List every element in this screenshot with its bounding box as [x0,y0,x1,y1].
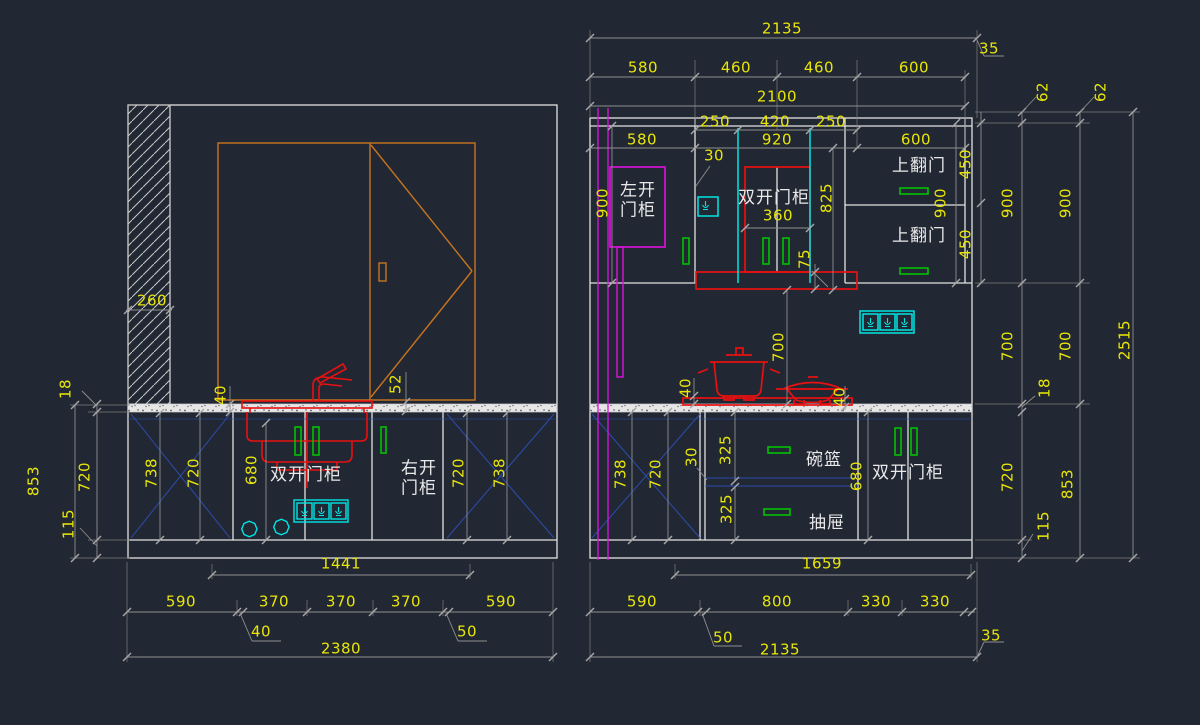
dim-370-c: 370 [391,593,421,610]
dim-115-plinth: 115 [1035,511,1052,541]
dim-325-b: 325 [718,494,735,524]
dim-counter-overhang: 40 [212,385,229,405]
dim-330-b: 330 [920,593,950,610]
dim-62-b: 62 [1092,82,1109,102]
dim-900-left: 900 [594,188,611,218]
dim-460-b: 460 [804,59,834,76]
dimension-lines [70,30,1140,662]
dim-580-inner: 580 [627,131,657,148]
dim-720-base-panel: 720 [647,459,664,489]
dim-700-col1: 700 [999,331,1016,361]
dim-30-base: 30 [683,447,700,467]
dim-738-base: 738 [612,459,629,489]
dim-hatch-width: 260 [137,292,167,309]
dim-370-a: 370 [259,593,289,610]
dim-panel-738-right: 738 [491,458,508,488]
dim-base-total-height: 853 [25,466,42,496]
dim-62-a: 62 [1034,82,1051,102]
dim-700-interior: 700 [770,332,787,362]
dim-panel-720-left: 720 [185,458,202,488]
dim-920: 920 [762,131,792,148]
cad-canvas: 260188537201154052738720680双开门柜右开 门柜7207… [0,0,1200,725]
outlet-and-pipes-left [242,500,348,537]
dim-825: 825 [818,183,835,213]
dim-interior-680: 680 [243,455,260,485]
dim-720-base: 720 [999,462,1016,492]
dim-2380-overall: 2380 [321,640,361,657]
wall-hatch-strip [128,105,170,404]
dim-590-bottom: 590 [627,593,657,610]
dim-panel-738-left: 738 [143,458,160,488]
label-left-door-cabinet: 左开 门柜 [620,181,656,220]
dim-600-top: 600 [899,59,929,76]
dim-1659: 1659 [802,555,842,572]
dim-853-base-total: 853 [1059,469,1076,499]
dim-580-top: 580 [628,59,658,76]
label-right-door-cabinet: 右开 门柜 [401,459,437,498]
dim-330-a: 330 [861,593,891,610]
dim-450-a: 450 [957,149,974,179]
dim-35-bottom: 35 [981,627,1001,644]
dim-2100: 2100 [757,88,797,105]
dim-680-base: 680 [848,461,865,491]
dim-370-b: 370 [326,593,356,610]
dim-250-a: 250 [700,113,730,130]
dim-360: 360 [763,207,793,224]
dim-420: 420 [760,113,790,130]
dim-900-col2: 900 [1057,188,1074,218]
dim-1441: 1441 [321,555,361,572]
dim-plinth-height: 115 [60,509,77,539]
dim-900-col1: 900 [999,188,1016,218]
dim-50-offset-right: 50 [713,629,733,646]
dim-18-counter: 18 [1036,378,1053,398]
label-drawer: 抽屉 [809,514,845,534]
cad-linework [0,0,1200,725]
dim-590-right: 590 [486,593,516,610]
dim-800: 800 [762,593,792,610]
dim-50-offset: 50 [457,623,477,640]
dim-base-cabinet-height: 720 [76,462,93,492]
label-double-door-cabinet-base: 双开门柜 [872,464,944,484]
dim-counter-thickness: 18 [57,379,74,399]
upper-cabinet-glass-lines [698,128,914,333]
label-double-door-cabinet: 双开门柜 [270,466,342,486]
dim-40-cooktop-right: 40 [831,387,848,407]
dim-900-inner: 900 [932,188,949,218]
dim-40-offset: 40 [251,623,271,640]
dim-2515-overall: 2515 [1116,320,1133,360]
dim-40-cooktop-left: 40 [677,378,694,398]
label-flip-up-door-top: 上翻门 [892,157,946,177]
label-bowl-basket: 碗篮 [806,451,842,471]
dim-460-a: 460 [721,59,751,76]
dim-600-inner: 600 [901,131,931,148]
dim-450-b: 450 [957,229,974,259]
dim-35-top: 35 [979,40,999,57]
dim-window-gap: 52 [387,374,404,394]
dim-325-a: 325 [717,435,734,465]
dim-2135-top: 2135 [762,20,802,37]
label-flip-up-door-bottom: 上翻门 [892,227,946,247]
dim-panel-720-right: 720 [450,458,467,488]
window [218,143,475,400]
dim-590-left: 590 [166,593,196,610]
dim-2135-bottom: 2135 [760,641,800,658]
dim-250-b: 250 [816,113,846,130]
dim-700-col2: 700 [1057,331,1074,361]
dim-75-hood: 75 [796,249,813,269]
dim-30-upper: 30 [704,147,724,164]
